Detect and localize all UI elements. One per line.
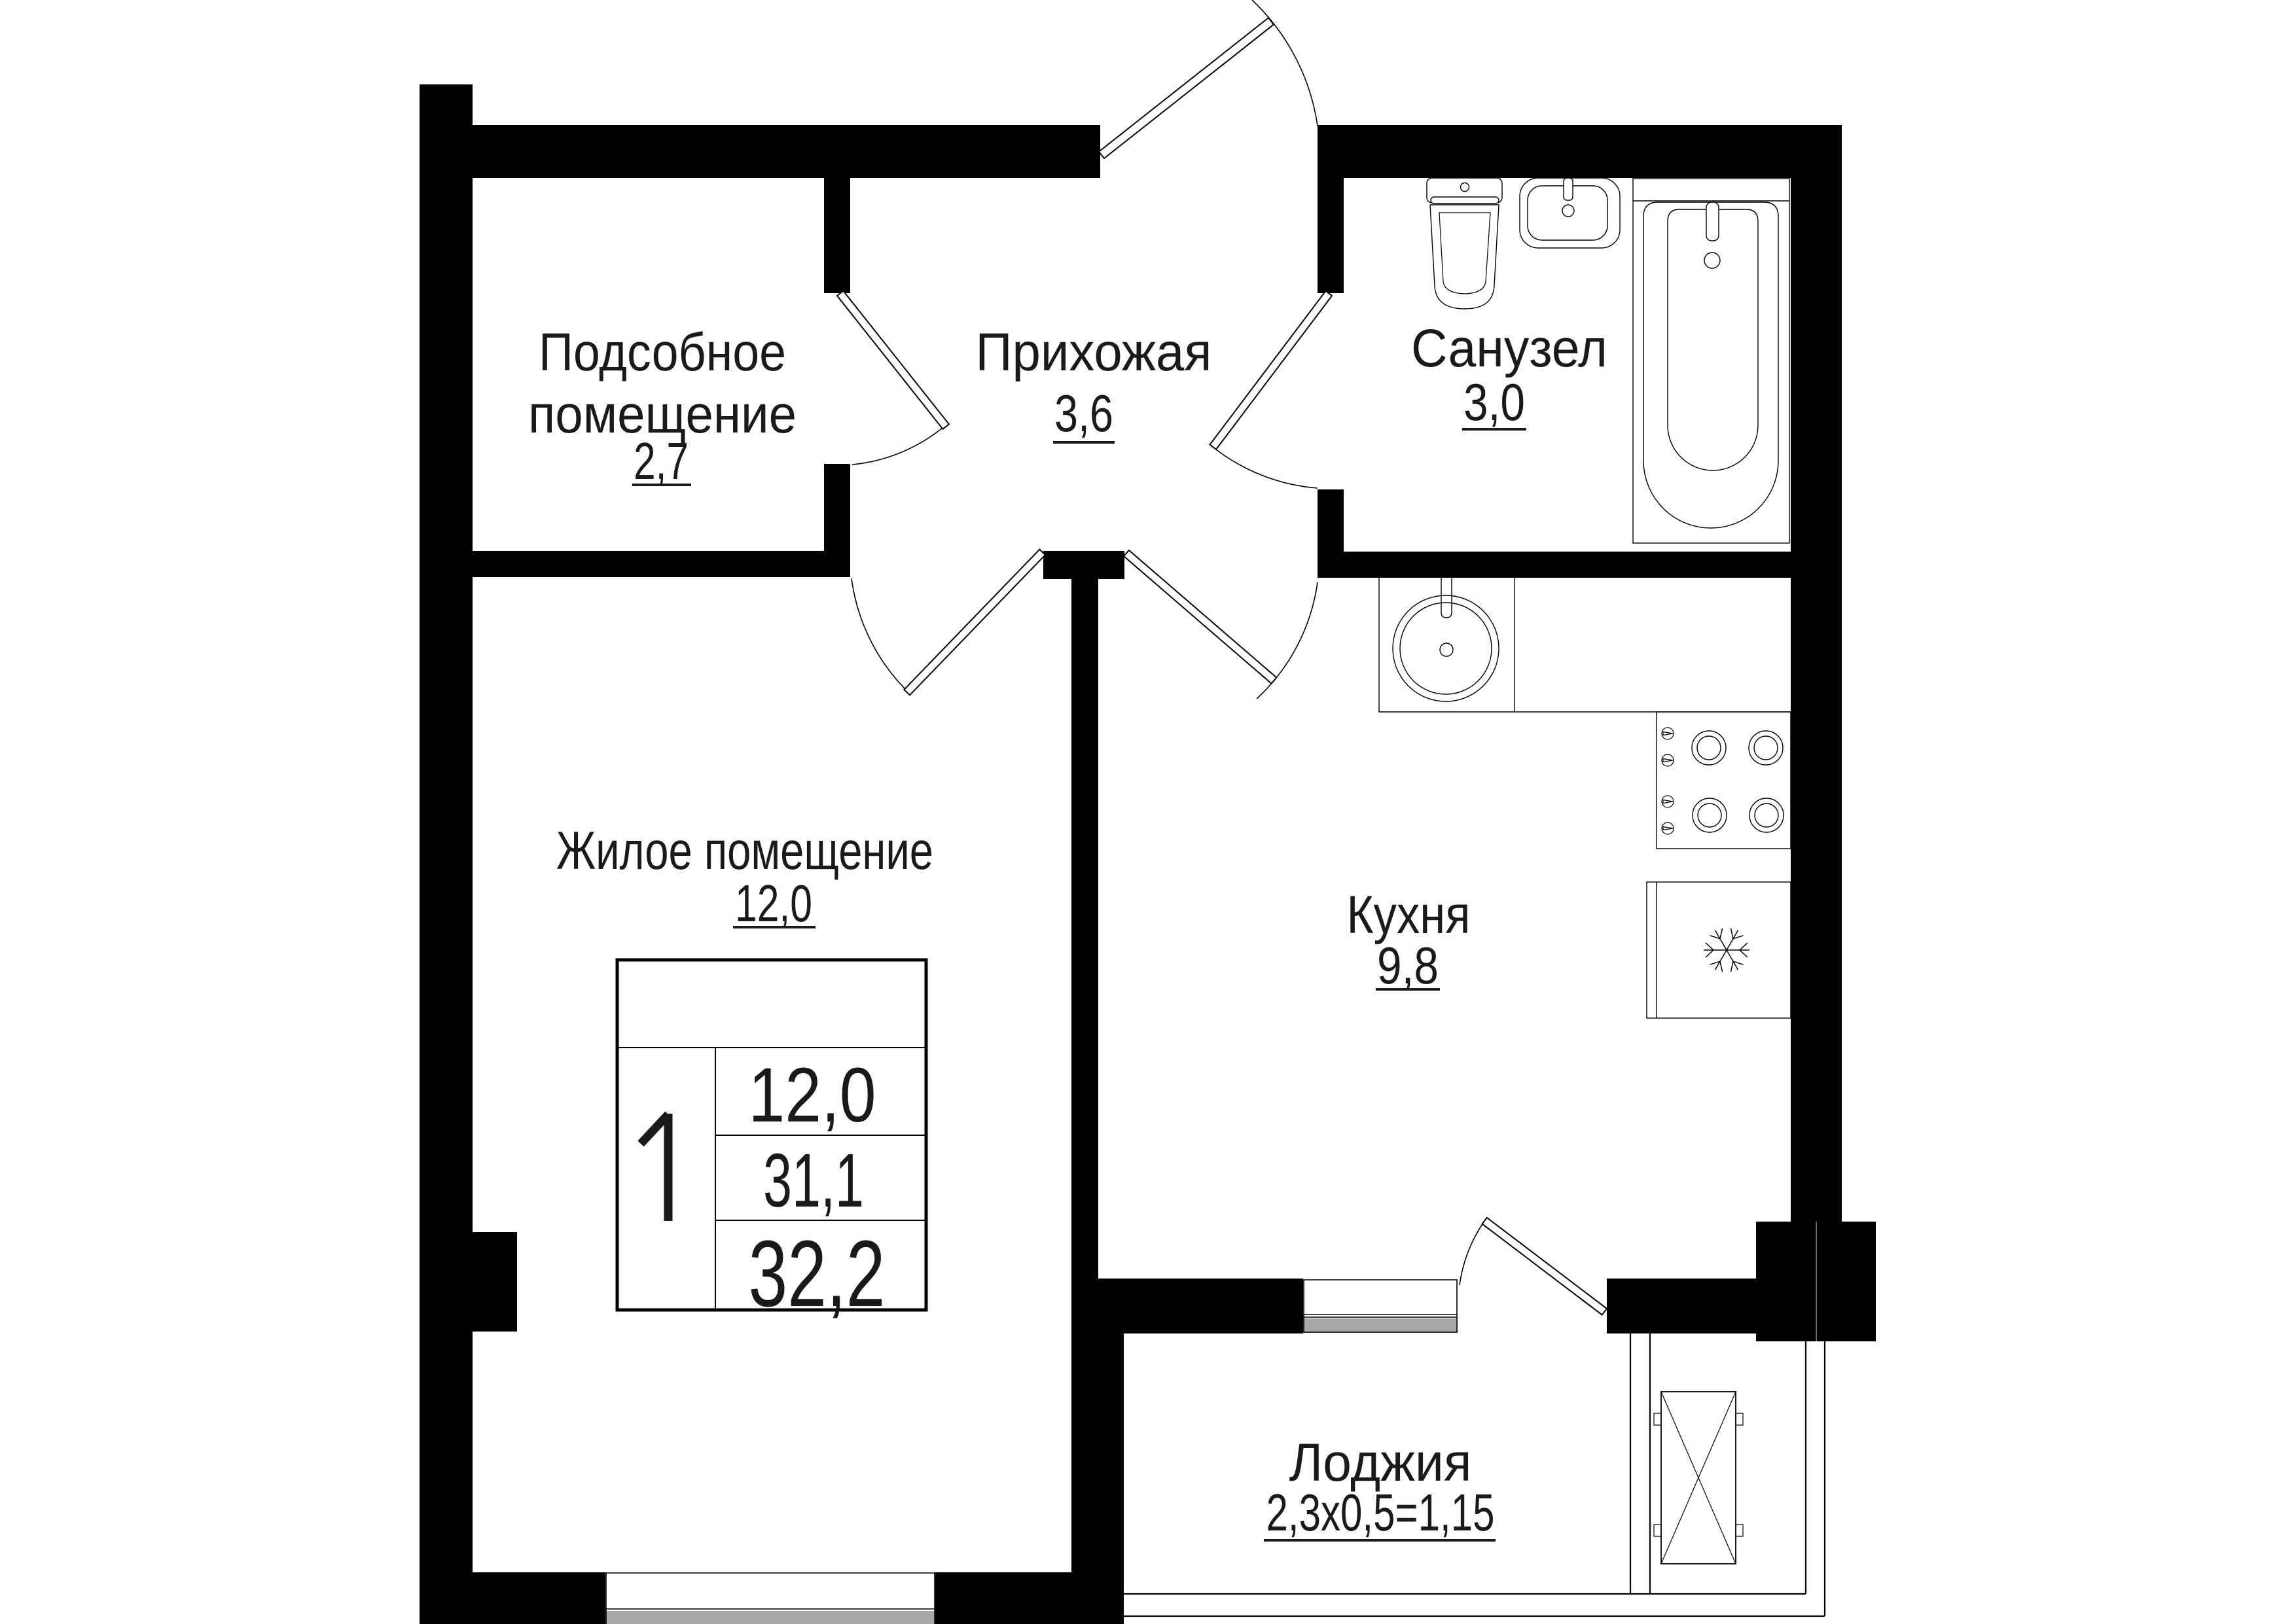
svg-text:3,6: 3,6 bbox=[1054, 384, 1113, 442]
svg-text:32,2: 32,2 bbox=[749, 1221, 886, 1326]
svg-text:12,0: 12,0 bbox=[749, 1052, 876, 1139]
svg-text:12,0: 12,0 bbox=[735, 874, 812, 932]
svg-text:31,1: 31,1 bbox=[763, 1138, 864, 1223]
svg-text:Жилое помещение: Жилое помещение bbox=[556, 821, 933, 881]
svg-text:Санузел: Санузел bbox=[1411, 319, 1607, 378]
svg-text:9,8: 9,8 bbox=[1377, 936, 1439, 995]
svg-text:Прихожая: Прихожая bbox=[976, 323, 1212, 382]
svg-text:2,3х0,5=1,15: 2,3х0,5=1,15 bbox=[1266, 1483, 1495, 1542]
svg-text:3,0: 3,0 bbox=[1463, 373, 1525, 431]
svg-text:2,7: 2,7 bbox=[634, 432, 689, 490]
svg-text:Подсобное: Подсобное bbox=[539, 323, 786, 382]
